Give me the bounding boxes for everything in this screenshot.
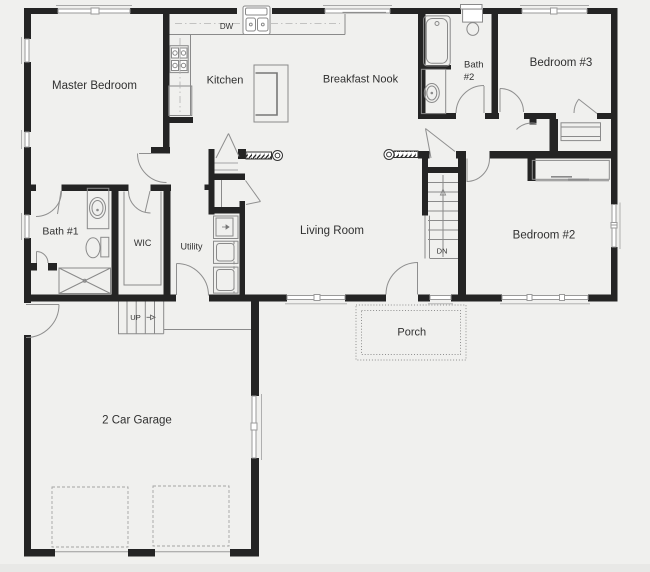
svg-text:UP: UP bbox=[130, 313, 140, 322]
svg-text:Bath: Bath bbox=[464, 60, 484, 71]
svg-text:DW: DW bbox=[220, 22, 234, 31]
svg-text:2 Car Garage: 2 Car Garage bbox=[102, 415, 172, 427]
svg-text:Kitchen: Kitchen bbox=[207, 75, 244, 87]
svg-text:Bath #1: Bath #1 bbox=[42, 226, 78, 238]
svg-text:Bedroom #2: Bedroom #2 bbox=[513, 230, 576, 242]
svg-text:#2: #2 bbox=[464, 72, 475, 83]
svg-text:DN: DN bbox=[437, 247, 448, 256]
svg-text:Utility: Utility bbox=[181, 242, 203, 252]
svg-text:Master Bedroom: Master Bedroom bbox=[52, 80, 137, 92]
svg-text:Living Room: Living Room bbox=[300, 225, 364, 237]
svg-text:WIC: WIC bbox=[134, 238, 152, 248]
svg-text:Breakfast Nook: Breakfast Nook bbox=[323, 74, 399, 86]
svg-text:Bedroom #3: Bedroom #3 bbox=[530, 57, 593, 69]
svg-text:Porch: Porch bbox=[397, 327, 426, 339]
